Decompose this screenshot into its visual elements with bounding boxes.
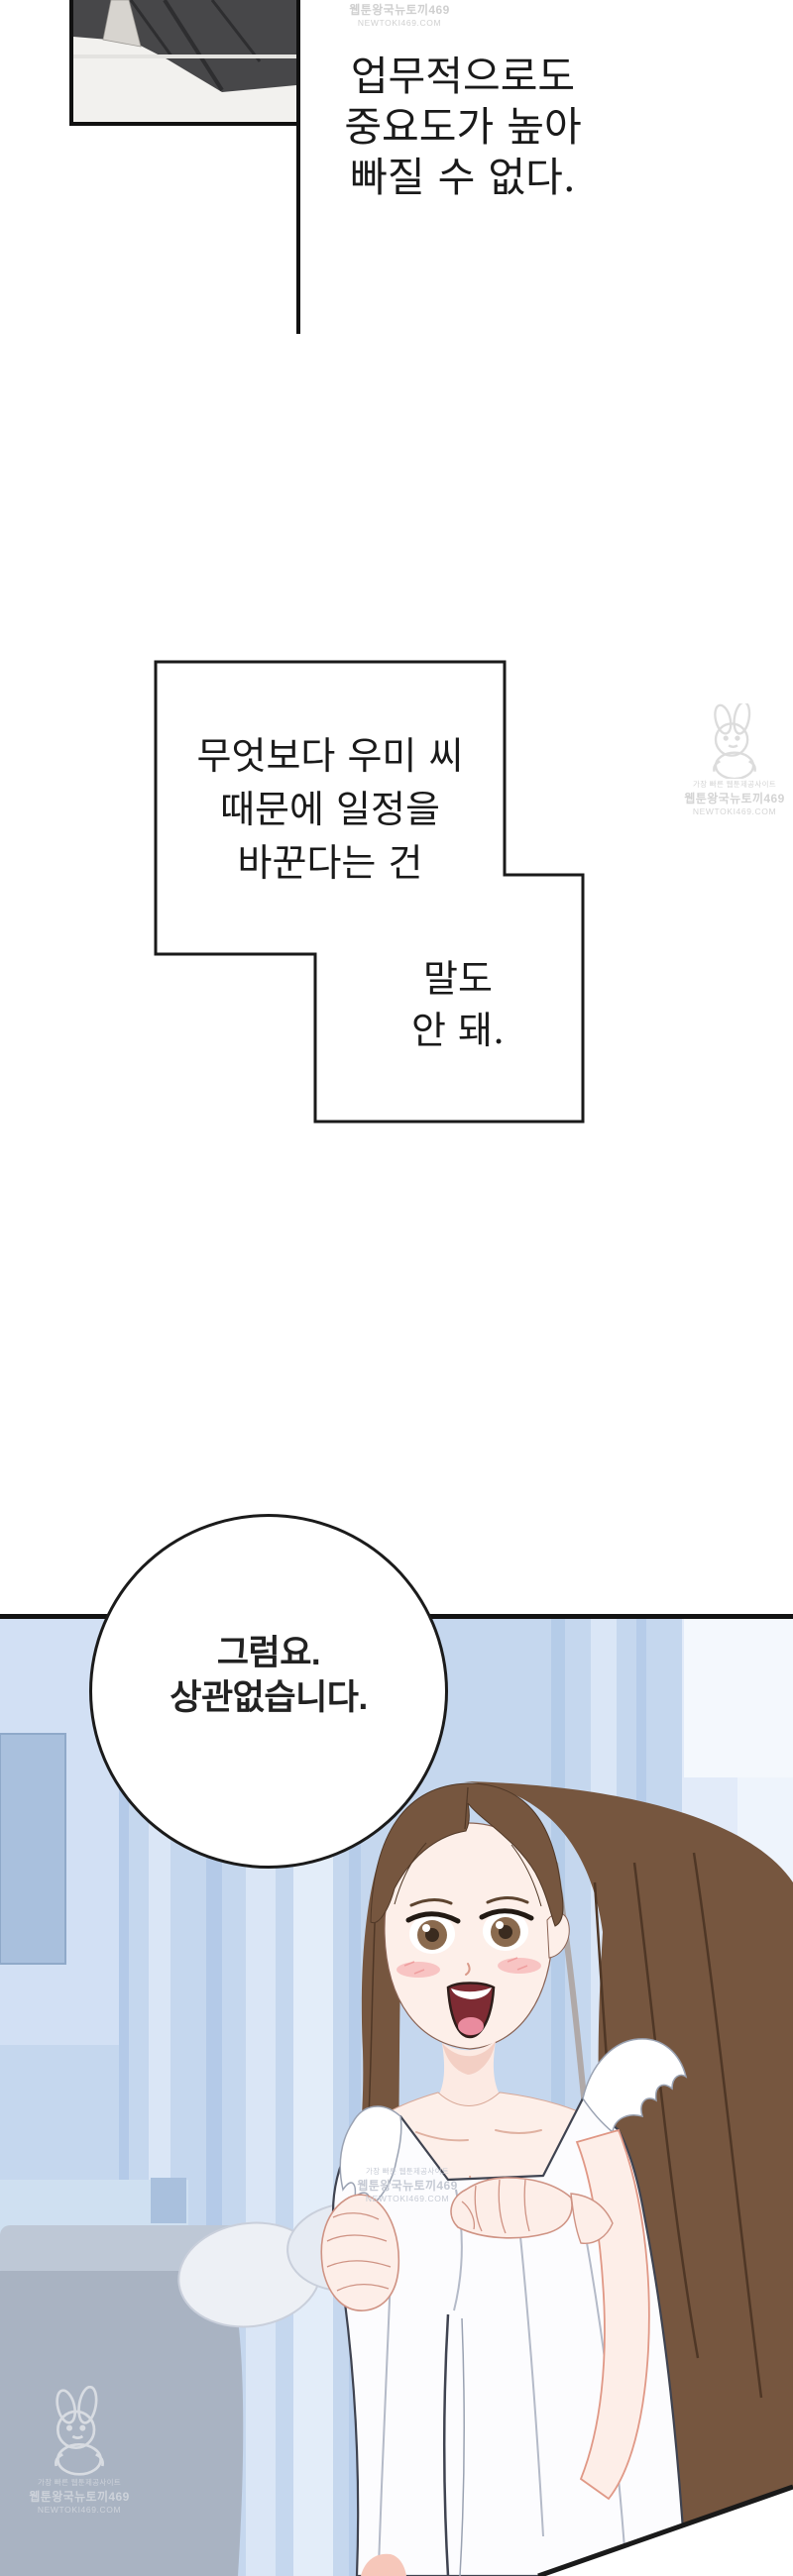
watermark-domain: NEWTOKI469.COM [343, 2194, 472, 2203]
narration-mid-main: 무엇보다 우미 씨 때문에 일정을 바꾼다는 건 [157, 729, 504, 890]
watermark-site-name: 웹툰왕국뉴토끼469 [682, 790, 787, 806]
narration-line: 무엇보다 우미 씨 [157, 729, 504, 783]
watermark-mid-right: 가장 빠른 웹툰제공사이트 웹툰왕국뉴토끼469 NEWTOKI469.COM [682, 703, 787, 816]
watermark-site-name: 웹툰왕국뉴토끼469 [349, 1, 450, 18]
narration-line: 바꾼다는 건 [157, 836, 504, 890]
rabbit-mascot-icon [691, 703, 778, 779]
speech-line: 상관없습니다. [170, 1675, 367, 1720]
panel-divider-line [296, 126, 300, 334]
panel-office-ceiling [69, 0, 300, 126]
narration-mid-sub: 말도 안 돼. [327, 953, 589, 1056]
watermark-tagline: 가장 빠른 웹툰제공사이트 [20, 2477, 139, 2488]
ceiling-illustration [73, 0, 296, 122]
narration-line: 안 돼. [327, 1005, 589, 1056]
narration-top: 업무적으로도 중요도가 높아 빠질 수 없다. [330, 52, 596, 203]
watermark-site-name: 웹툰왕국뉴토끼469 [20, 2488, 139, 2505]
neck [438, 2041, 500, 2108]
webtoon-page: 웹툰왕국뉴토끼469 NEWTOKI469.COM 업무적으로도 중요도가 높아… [0, 0, 793, 2576]
watermark-bottom-left: 가장 빠른 웹툰제공사이트 웹툰왕국뉴토끼469 NEWTOKI469.COM [20, 2386, 139, 2515]
stepped-narration-box [149, 654, 590, 1129]
watermark-domain: NEWTOKI469.COM [349, 18, 450, 28]
narration-line: 때문에 일정을 [157, 783, 504, 836]
speech-bubble: 그럼요. 상관없습니다. [89, 1514, 448, 1869]
narration-line: 빠질 수 없다. [330, 153, 596, 203]
narration-line: 업무적으로도 [330, 52, 596, 102]
speech-line: 그럼요. [170, 1631, 367, 1675]
wall-window [0, 1734, 65, 1964]
watermark-tagline: 가장 빠른 웹툰제공사이트 [343, 2166, 472, 2177]
watermark-domain: NEWTOKI469.COM [20, 2505, 139, 2515]
watermark-site-name: 웹툰왕국뉴토끼469 [343, 2177, 472, 2194]
narration-line: 말도 [327, 953, 589, 1005]
watermark-top-right: 웹툰왕국뉴토끼469 NEWTOKI469.COM [349, 1, 450, 28]
watermark-on-dress: 가장 빠른 웹툰제공사이트 웹툰왕국뉴토끼469 NEWTOKI469.COM [343, 2166, 472, 2203]
speech-bubble-text: 그럼요. 상관없습니다. [170, 1631, 367, 1720]
rabbit-mascot-icon [30, 2386, 129, 2477]
narration-line: 중요도가 높아 [330, 102, 596, 153]
watermark-domain: NEWTOKI469.COM [682, 806, 787, 816]
watermark-tagline: 가장 빠른 웹툰제공사이트 [682, 779, 787, 790]
